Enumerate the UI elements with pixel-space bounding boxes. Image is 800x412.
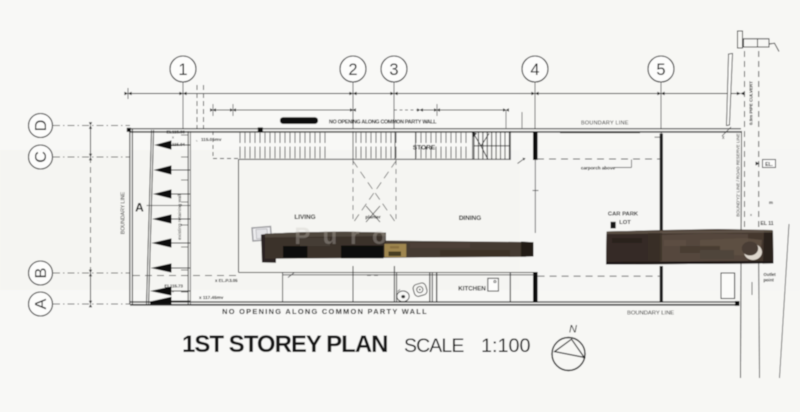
svg-text:x: x	[750, 212, 752, 217]
svg-text:BOUNDARY LINE: BOUNDARY LINE	[121, 191, 127, 234]
svg-text:B: B	[33, 268, 50, 279]
svg-text:EL 11: EL 11	[761, 221, 774, 227]
svg-text:EL115.04: EL115.04	[167, 142, 186, 147]
svg-text:x EL.P.3.05: x EL.P.3.05	[215, 278, 238, 283]
svg-text:P u r o: P u r o	[294, 223, 389, 250]
svg-text:m: m	[769, 200, 773, 205]
svg-text:LOT: LOT	[619, 220, 631, 226]
svg-text:A: A	[135, 201, 144, 215]
svg-text:EL115.73: EL115.73	[165, 284, 184, 289]
svg-text:1:100: 1:100	[481, 335, 531, 357]
svg-text:CAR PARK: CAR PARK	[608, 212, 639, 218]
svg-text:4: 4	[530, 61, 539, 79]
svg-text:x: x	[172, 290, 174, 294]
svg-text:point: point	[764, 278, 775, 283]
svg-text:x 117.45mv: x 117.45mv	[199, 295, 224, 300]
svg-text:KITCHEN: KITCHEN	[458, 286, 486, 293]
svg-text:⌞: ⌞	[196, 137, 198, 142]
svg-text:DINING: DINING	[459, 215, 481, 222]
svg-text:2: 2	[348, 61, 357, 79]
svg-text:carporch above: carporch above	[581, 166, 616, 171]
svg-text:NO OPENING ALONG COMMON PARTY: NO OPENING ALONG COMMON PARTY WALL	[329, 120, 437, 126]
svg-text:1ST STOREY PLAN: 1ST STOREY PLAN	[182, 331, 388, 358]
svg-text:0.9m PIPE CULVERT: 0.9m PIPE CULVERT	[749, 81, 754, 125]
svg-text:EL.: EL.	[765, 162, 773, 168]
svg-text:SCALE: SCALE	[404, 335, 464, 357]
svg-text:LIVING: LIVING	[294, 214, 315, 221]
svg-text:N: N	[569, 324, 577, 336]
svg-text:x: x	[172, 136, 174, 140]
svg-text:existing retaining wall: existing retaining wall	[177, 194, 183, 240]
svg-text:planter: planter	[365, 214, 381, 219]
svg-text:D: D	[33, 120, 50, 132]
svg-text:NO OPENING ALONG COMMON PARTY: NO OPENING ALONG COMMON PARTY WALL	[222, 307, 428, 316]
svg-text:Outlet: Outlet	[764, 272, 777, 277]
svg-text:STORE: STORE	[413, 145, 436, 152]
svg-text:115.05mv: 115.05mv	[201, 137, 222, 142]
svg-text:1: 1	[178, 61, 187, 79]
svg-text:EL115.00: EL115.00	[167, 129, 186, 134]
svg-text:A: A	[33, 298, 50, 309]
svg-text:BOUNDARY LINE: BOUNDARY LINE	[627, 311, 674, 317]
svg-text:BOUND’Y2’ LINE / ROAD RESERVE: BOUND’Y2’ LINE / ROAD RESERVE LINE	[736, 133, 741, 217]
svg-text:BOUNDARY LINE: BOUNDARY LINE	[581, 121, 629, 127]
svg-text:C: C	[33, 151, 50, 163]
svg-text:5: 5	[656, 61, 665, 79]
svg-text:3: 3	[389, 61, 398, 79]
